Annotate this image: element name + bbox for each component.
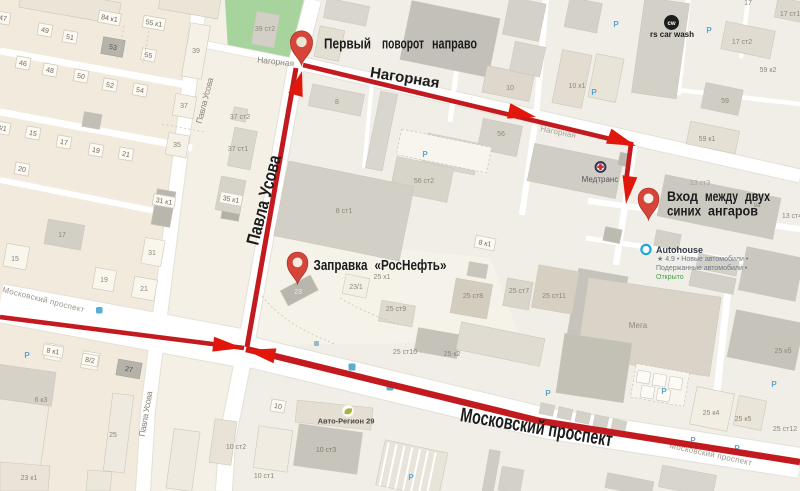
- svg-text:37 ст2: 37 ст2: [230, 114, 250, 121]
- svg-text:15: 15: [28, 130, 37, 138]
- svg-text:59 к2: 59 к2: [760, 67, 777, 74]
- svg-text:25 к4: 25 к4: [703, 410, 720, 417]
- svg-text:P: P: [24, 351, 30, 360]
- svg-text:37: 37: [180, 103, 188, 110]
- svg-text:19: 19: [100, 277, 108, 284]
- svg-text:37 ст1: 37 ст1: [228, 146, 248, 153]
- svg-text:Подержанные автомобили •: Подержанные автомобили •: [656, 264, 748, 272]
- svg-text:10 ст3: 10 ст3: [316, 447, 336, 454]
- svg-text:25: 25: [109, 432, 117, 439]
- svg-text:Авто-Регион 29: Авто-Регион 29: [318, 417, 375, 426]
- svg-text:Заправка: Заправка: [314, 257, 369, 274]
- svg-text:25 ст8: 25 ст8: [463, 293, 483, 300]
- svg-text:6 к3: 6 к3: [35, 397, 48, 404]
- svg-text:25 к5: 25 к5: [735, 416, 752, 423]
- svg-text:cw: cw: [667, 21, 675, 27]
- svg-text:39: 39: [192, 48, 200, 55]
- svg-text:13 ст4: 13 ст4: [782, 213, 800, 220]
- svg-text:17 ст2: 17 ст2: [732, 39, 752, 46]
- svg-text:8: 8: [335, 99, 339, 106]
- svg-text:ангаров: ангаров: [708, 203, 758, 219]
- svg-text:P: P: [771, 380, 777, 389]
- svg-text:Открыто: Открыто: [656, 274, 684, 281]
- svg-text:P: P: [706, 26, 712, 35]
- svg-text:23/1: 23/1: [349, 284, 363, 291]
- svg-text:13 ст3: 13 ст3: [690, 180, 710, 187]
- svg-text:51: 51: [65, 34, 74, 42]
- svg-text:P: P: [661, 387, 667, 396]
- svg-text:27: 27: [124, 366, 133, 374]
- svg-text:53: 53: [108, 44, 117, 52]
- svg-text:25 ст11: 25 ст11: [542, 293, 566, 300]
- svg-text:52: 52: [105, 82, 114, 90]
- svg-text:47: 47: [0, 15, 7, 23]
- svg-text:10: 10: [506, 85, 514, 92]
- svg-text:46: 46: [18, 60, 27, 68]
- svg-text:25 ст7: 25 ст7: [509, 288, 529, 295]
- svg-text:P: P: [613, 20, 619, 29]
- svg-text:31: 31: [148, 250, 156, 257]
- svg-text:39 ст2: 39 ст2: [255, 26, 275, 33]
- svg-text:10: 10: [273, 403, 282, 411]
- svg-text:25 к2: 25 к2: [444, 351, 461, 358]
- svg-text:Медтранс: Медтранс: [582, 175, 619, 184]
- svg-text:10 ст1: 10 ст1: [254, 473, 274, 480]
- svg-text:59: 59: [721, 98, 729, 105]
- svg-text:56 ст2: 56 ст2: [414, 178, 434, 185]
- svg-text:15: 15: [11, 256, 19, 263]
- svg-text:54: 54: [135, 87, 144, 95]
- svg-text:25 ст10: 25 ст10: [393, 349, 417, 356]
- svg-text:10 ст2: 10 ст2: [226, 444, 246, 451]
- svg-text:25 кб: 25 кб: [775, 347, 792, 355]
- svg-text:55: 55: [144, 52, 153, 60]
- svg-text:Первый: Первый: [324, 37, 371, 53]
- svg-text:25 х1: 25 х1: [373, 274, 390, 281]
- svg-text:17: 17: [58, 232, 66, 239]
- svg-text:«РосНефть»: «РосНефть»: [375, 257, 447, 274]
- svg-text:56: 56: [497, 131, 505, 138]
- svg-text:21: 21: [140, 286, 148, 293]
- svg-text:50: 50: [76, 73, 85, 81]
- svg-text:17: 17: [59, 139, 68, 147]
- svg-text:20: 20: [17, 166, 26, 174]
- svg-text:rs car wash: rs car wash: [650, 30, 694, 39]
- svg-text:P: P: [422, 150, 428, 159]
- svg-text:17: 17: [744, 0, 752, 7]
- svg-text:25 ст12: 25 ст12: [773, 426, 797, 433]
- svg-text:23: 23: [294, 289, 302, 296]
- svg-text:синих: синих: [667, 203, 701, 219]
- svg-text:направо: направо: [432, 37, 477, 53]
- svg-text:59 к1: 59 к1: [699, 136, 716, 143]
- svg-text:35: 35: [173, 142, 181, 149]
- svg-text:★ 4.9 • Новые автомобили •: ★ 4.9 • Новые автомобили •: [657, 255, 749, 263]
- svg-text:48: 48: [45, 67, 54, 75]
- svg-text:17 ст1: 17 ст1: [780, 11, 800, 18]
- svg-text:P: P: [408, 473, 414, 482]
- svg-text:10 х1: 10 х1: [568, 83, 585, 90]
- svg-text:19: 19: [91, 147, 100, 155]
- svg-text:25 ст9: 25 ст9: [386, 306, 406, 313]
- svg-text:поворот: поворот: [382, 37, 424, 53]
- svg-text:P: P: [591, 88, 597, 97]
- svg-text:21: 21: [121, 151, 130, 159]
- svg-text:Autohouse: Autohouse: [656, 245, 703, 255]
- svg-text:23 к1: 23 к1: [21, 475, 38, 482]
- svg-text:P: P: [545, 389, 551, 398]
- svg-text:Мега: Мега: [629, 321, 648, 330]
- svg-text:3/1: 3/1: [0, 125, 7, 134]
- svg-text:8 ст1: 8 ст1: [336, 208, 353, 215]
- svg-text:49: 49: [40, 27, 49, 35]
